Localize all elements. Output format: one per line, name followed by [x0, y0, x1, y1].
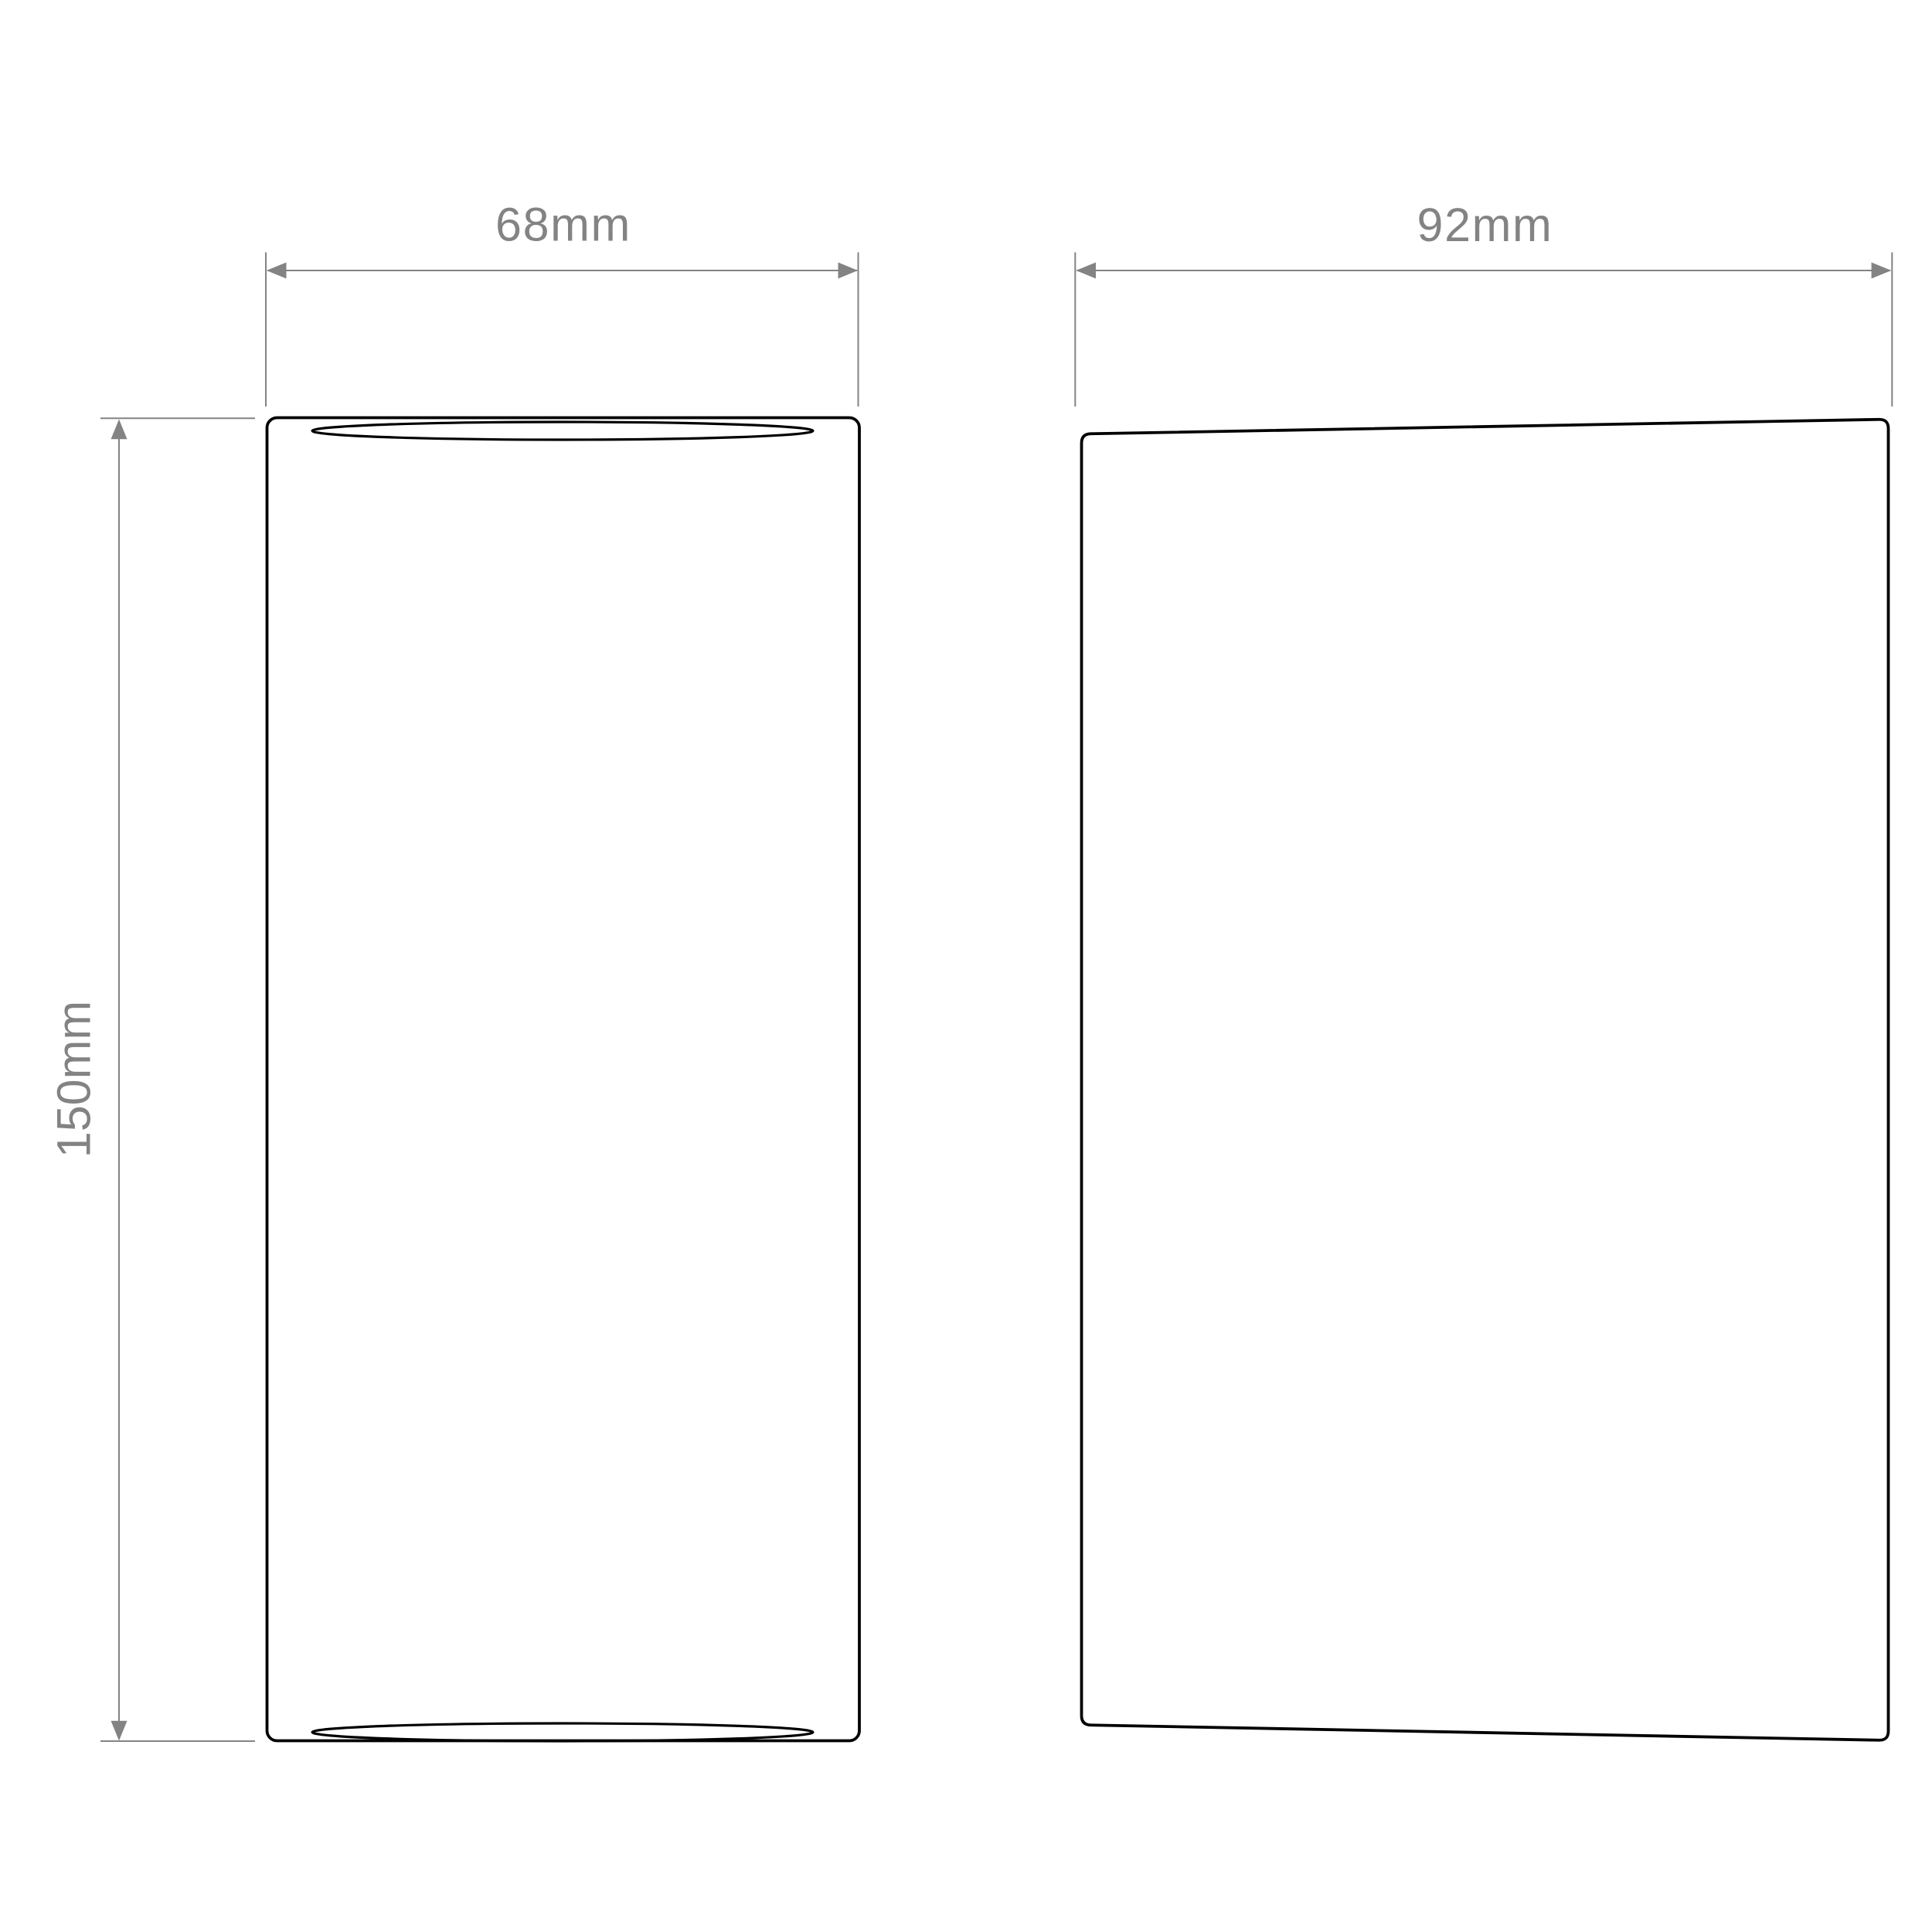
svg-text:150mm: 150mm	[48, 1001, 100, 1158]
svg-text:92mm: 92mm	[1417, 199, 1553, 251]
svg-text:68mm: 68mm	[495, 199, 631, 251]
